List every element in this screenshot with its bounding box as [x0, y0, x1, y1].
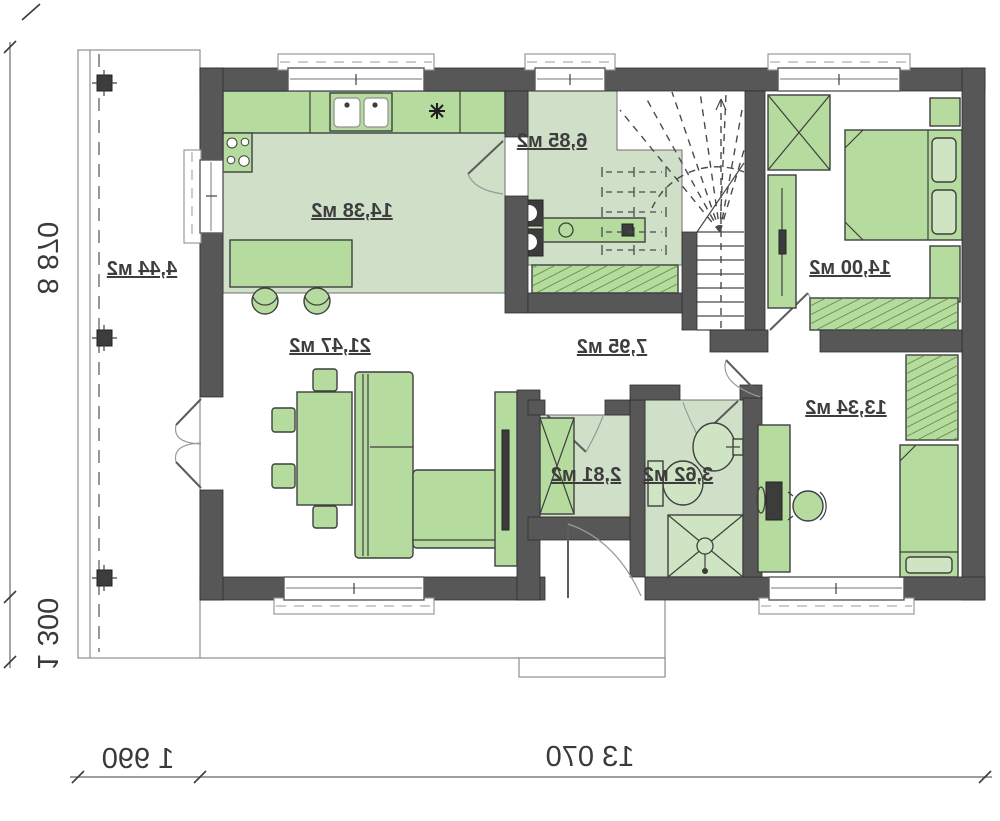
- stove: [223, 133, 252, 172]
- dim-bottom-main: 13 070: [546, 741, 635, 773]
- dining-table: [297, 392, 352, 505]
- kitchen-sink: [330, 93, 392, 131]
- cooktop-symbol-icon: [429, 103, 445, 119]
- dimension-left: 8 870 1 300: [4, 4, 63, 670]
- bedroom2-desk: [757, 425, 790, 572]
- dim-left-main: 8 870: [31, 222, 63, 295]
- chair: [272, 408, 295, 432]
- window-bedroom2-bottom: [759, 577, 914, 614]
- chair: [313, 506, 337, 528]
- bedroom1-wardrobe-hatched: [810, 298, 958, 330]
- dimension-bottom: 1 990 13 070: [70, 741, 992, 783]
- tv-cabinet: [495, 392, 517, 566]
- pillow: [906, 557, 952, 573]
- bathroom-area-label: 3,62 м2: [643, 464, 713, 486]
- living-area-label: 21,47 м2: [289, 335, 371, 357]
- kitchen-island: [230, 240, 352, 314]
- terrace: [78, 50, 200, 658]
- bedroom2-bed: [900, 445, 958, 577]
- window-kitchen-top: [278, 54, 434, 91]
- nightstand: [930, 98, 960, 126]
- nightstand: [930, 246, 960, 302]
- floor-plan-image: 14,38 м2 6,85 м2 14,00 м2 21,47 м2 7,95 …: [0, 0, 1000, 821]
- shower: [668, 515, 743, 577]
- sofa: [355, 372, 513, 558]
- closet-area-label: 2,81 м2: [551, 464, 621, 486]
- pillow: [932, 190, 956, 234]
- window-kitchen-left: [184, 150, 223, 243]
- hall-area-label: 7,95 м2: [577, 336, 647, 358]
- utility-counter: [543, 218, 645, 242]
- utility-area-label: 6,85 м2: [517, 130, 587, 152]
- shower-head-icon: [702, 568, 708, 574]
- bedroom1-wardrobe-x: [768, 95, 830, 170]
- chair: [313, 369, 337, 391]
- bedroom2-wardrobe-hatched: [906, 355, 958, 440]
- terrace-area-label: 4,44 м2: [107, 258, 177, 280]
- chair: [272, 464, 295, 488]
- computer-icon: [766, 482, 782, 520]
- dining-table-set: [272, 369, 352, 528]
- dim-left-lower: 1 300: [31, 598, 63, 671]
- bedroom1-dresser: [768, 175, 796, 308]
- window-bedroom1-top: [768, 54, 910, 91]
- floor-plan-svg: 14,38 м2 6,85 м2 14,00 м2 21,47 м2 7,95 …: [0, 0, 1000, 821]
- hall-wardrobe-hatched: [532, 265, 678, 293]
- bedroom2-area-label: 13,34 м2: [805, 397, 887, 419]
- window-living-bottom: [274, 577, 434, 614]
- kitchen-area-label: 14,38 м2: [311, 200, 393, 222]
- entry-step: [519, 658, 665, 677]
- window-utility-top: [525, 54, 615, 91]
- bedroom1-bed: [845, 130, 962, 240]
- pillow: [932, 138, 956, 182]
- bedroom2-chair: [788, 491, 826, 521]
- bedroom1-area-label: 14,00 м2: [809, 257, 891, 279]
- dim-bottom-left: 1 990: [102, 743, 175, 775]
